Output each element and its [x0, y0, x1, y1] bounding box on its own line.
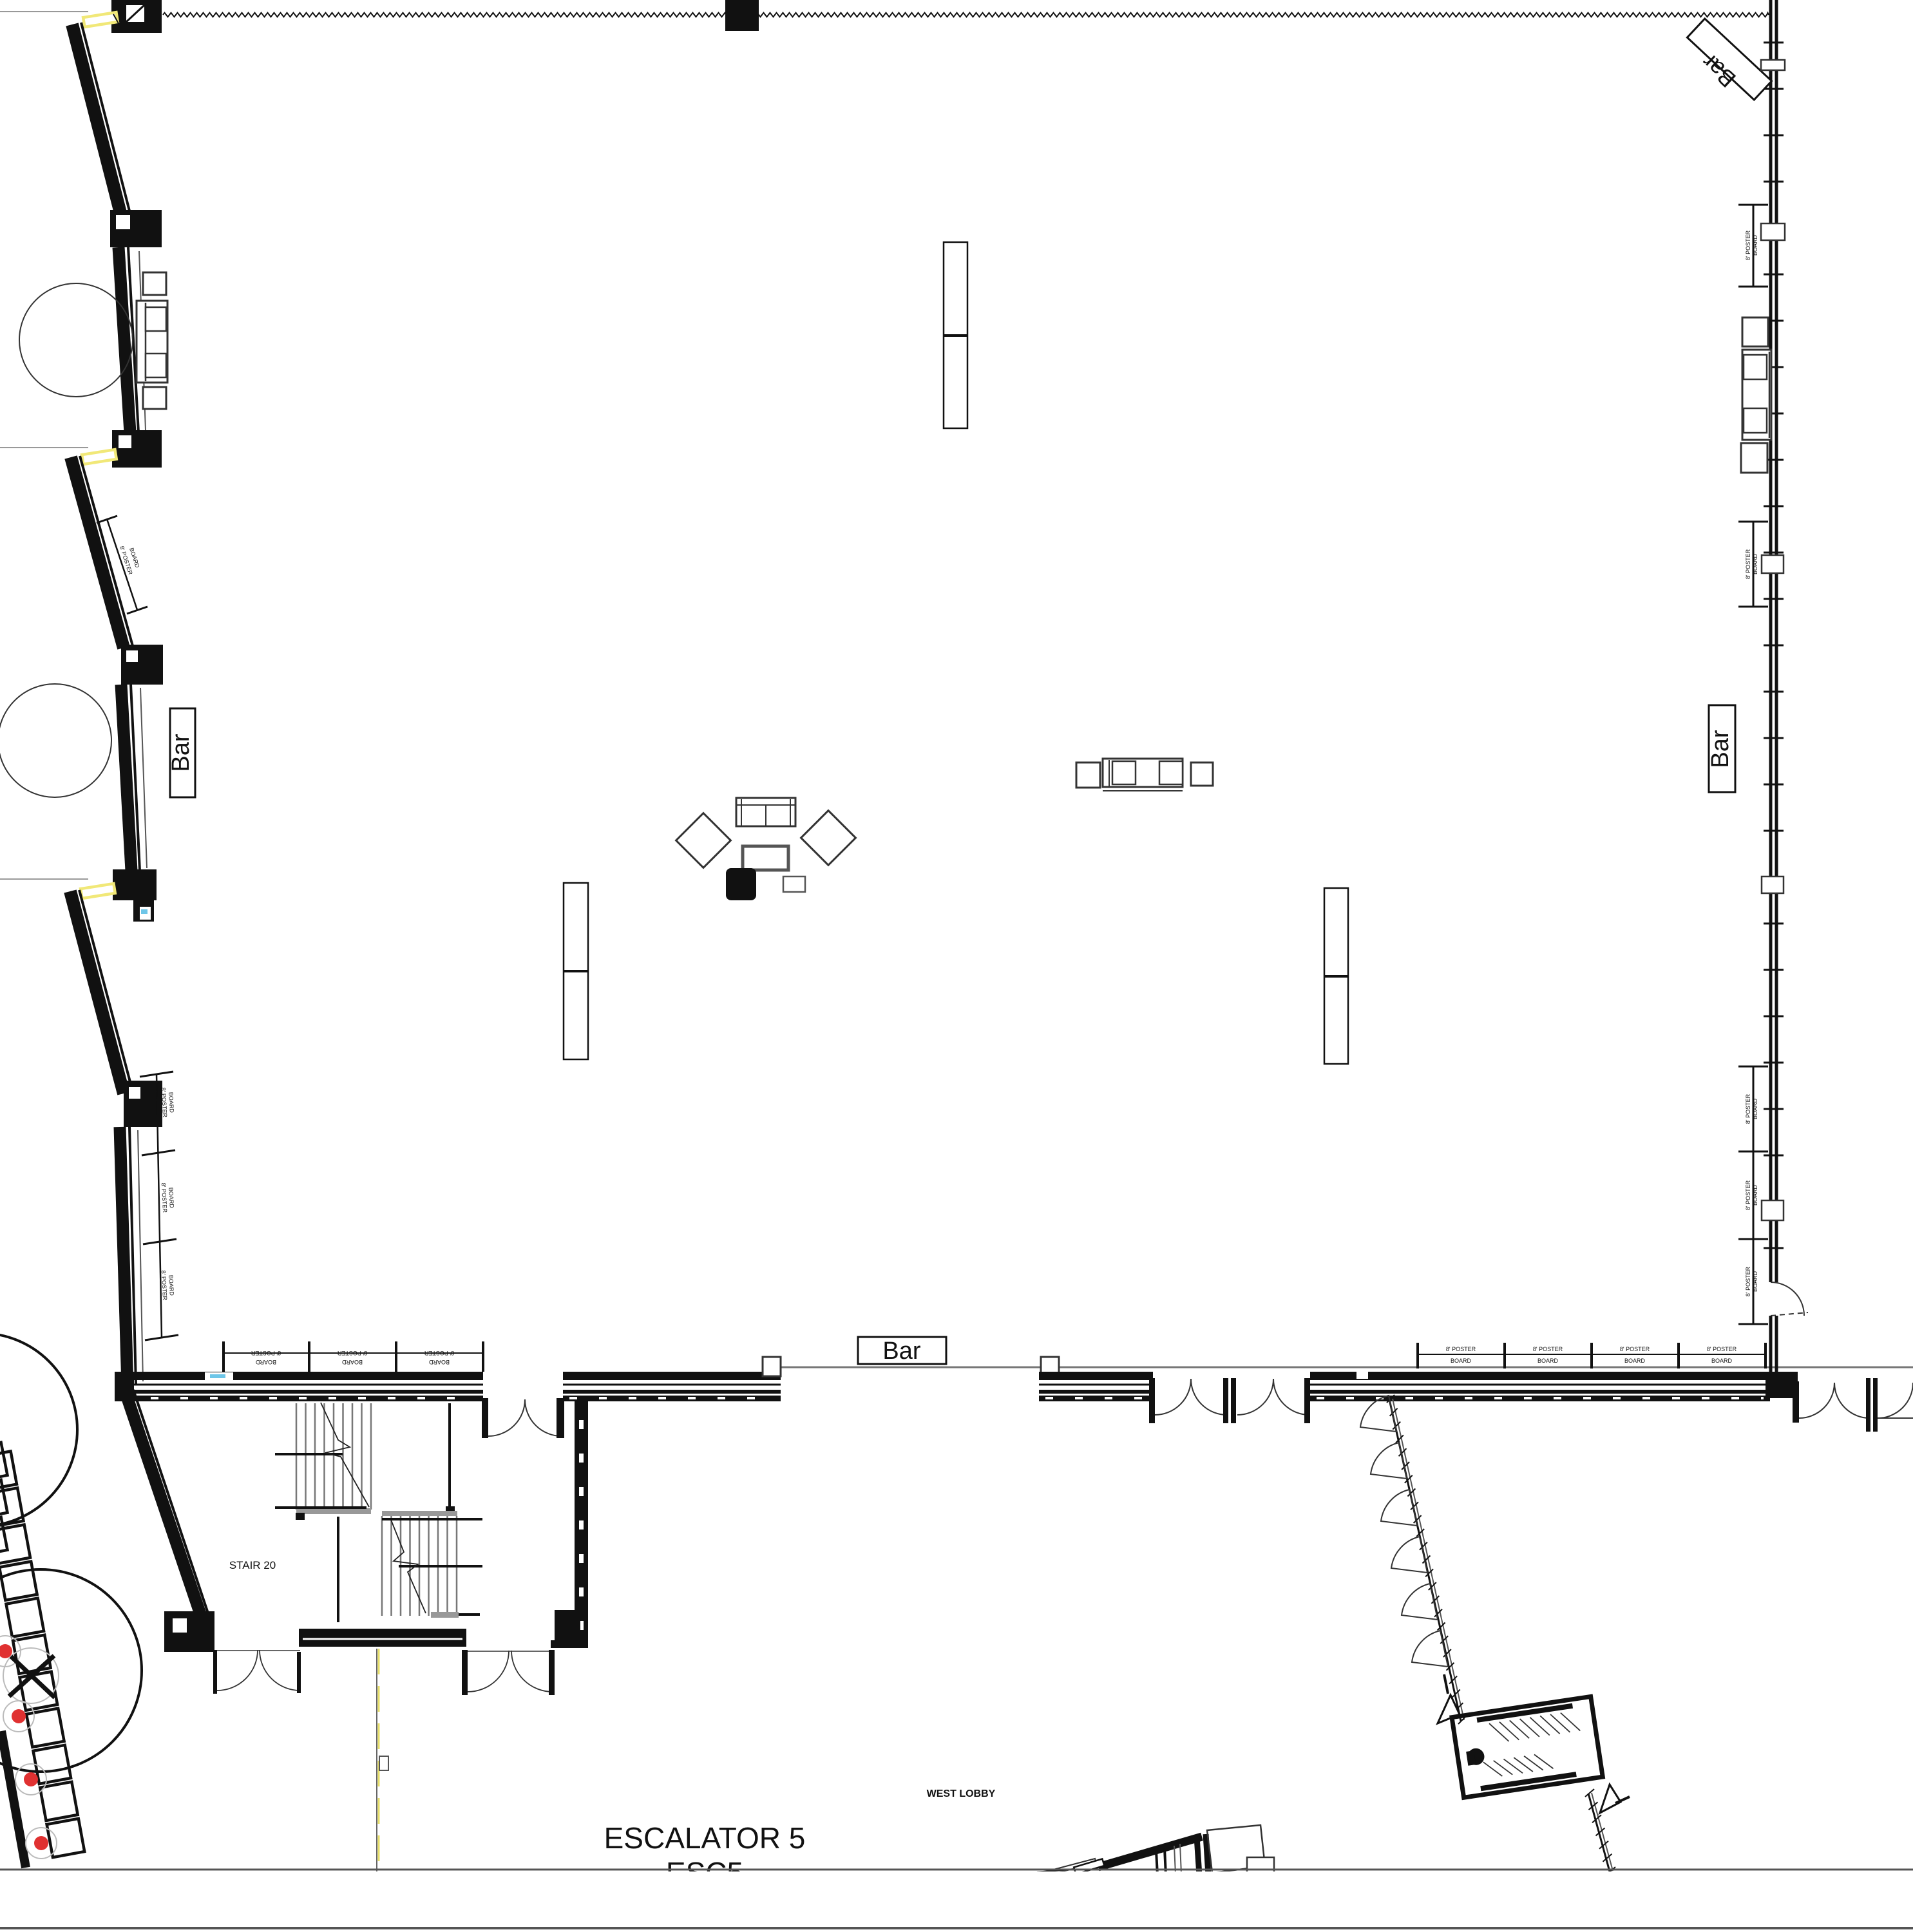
svg-text:BOARD: BOARD — [1451, 1358, 1472, 1364]
svg-text:8' POSTER: 8' POSTER — [1446, 1346, 1476, 1352]
svg-text:BOARD: BOARD — [1752, 1185, 1758, 1206]
svg-text:BOARD: BOARD — [1624, 1358, 1646, 1364]
svg-text:8' POSTER: 8' POSTER — [337, 1350, 367, 1356]
svg-text:8' POSTER: 8' POSTER — [251, 1350, 281, 1356]
svg-text:Bar: Bar — [167, 734, 195, 772]
svg-text:8' POSTER: 8' POSTER — [1745, 1094, 1751, 1124]
svg-text:BOARD: BOARD — [1752, 554, 1758, 575]
svg-text:BOARD: BOARD — [1752, 1271, 1758, 1293]
svg-text:WEST LOBBY: WEST LOBBY — [927, 1788, 996, 1799]
svg-text:BOARD: BOARD — [1752, 1099, 1758, 1120]
svg-text:BOARD: BOARD — [1711, 1358, 1733, 1364]
svg-text:8' POSTER: 8' POSTER — [1745, 1266, 1751, 1296]
svg-text:BOARD: BOARD — [1537, 1358, 1559, 1364]
svg-text:8' POSTER: 8' POSTER — [1745, 1180, 1751, 1210]
svg-text:STAIR 20: STAIR 20 — [229, 1559, 276, 1571]
svg-text:BOARD: BOARD — [342, 1359, 363, 1365]
svg-text:BOARD: BOARD — [429, 1359, 450, 1365]
svg-text:BOARD: BOARD — [167, 1092, 175, 1113]
svg-text:BOARD: BOARD — [167, 1275, 175, 1296]
svg-text:Bar: Bar — [1707, 730, 1734, 768]
svg-text:8' POSTER: 8' POSTER — [1707, 1346, 1737, 1352]
svg-text:BOARD: BOARD — [1752, 235, 1758, 256]
svg-text:BOARD: BOARD — [167, 1188, 175, 1209]
svg-text:8' POSTER: 8' POSTER — [1620, 1346, 1650, 1352]
svg-text:8' POSTER: 8' POSTER — [1745, 230, 1751, 260]
svg-text:8' POSTER: 8' POSTER — [1745, 549, 1751, 579]
svg-text:ESCALATOR 5: ESCALATOR 5 — [604, 1821, 806, 1855]
svg-text:BOARD: BOARD — [256, 1359, 277, 1365]
svg-text:8' POSTER: 8' POSTER — [1533, 1346, 1563, 1352]
svg-text:8' POSTER: 8' POSTER — [424, 1350, 454, 1356]
svg-text:Bar: Bar — [882, 1338, 920, 1365]
